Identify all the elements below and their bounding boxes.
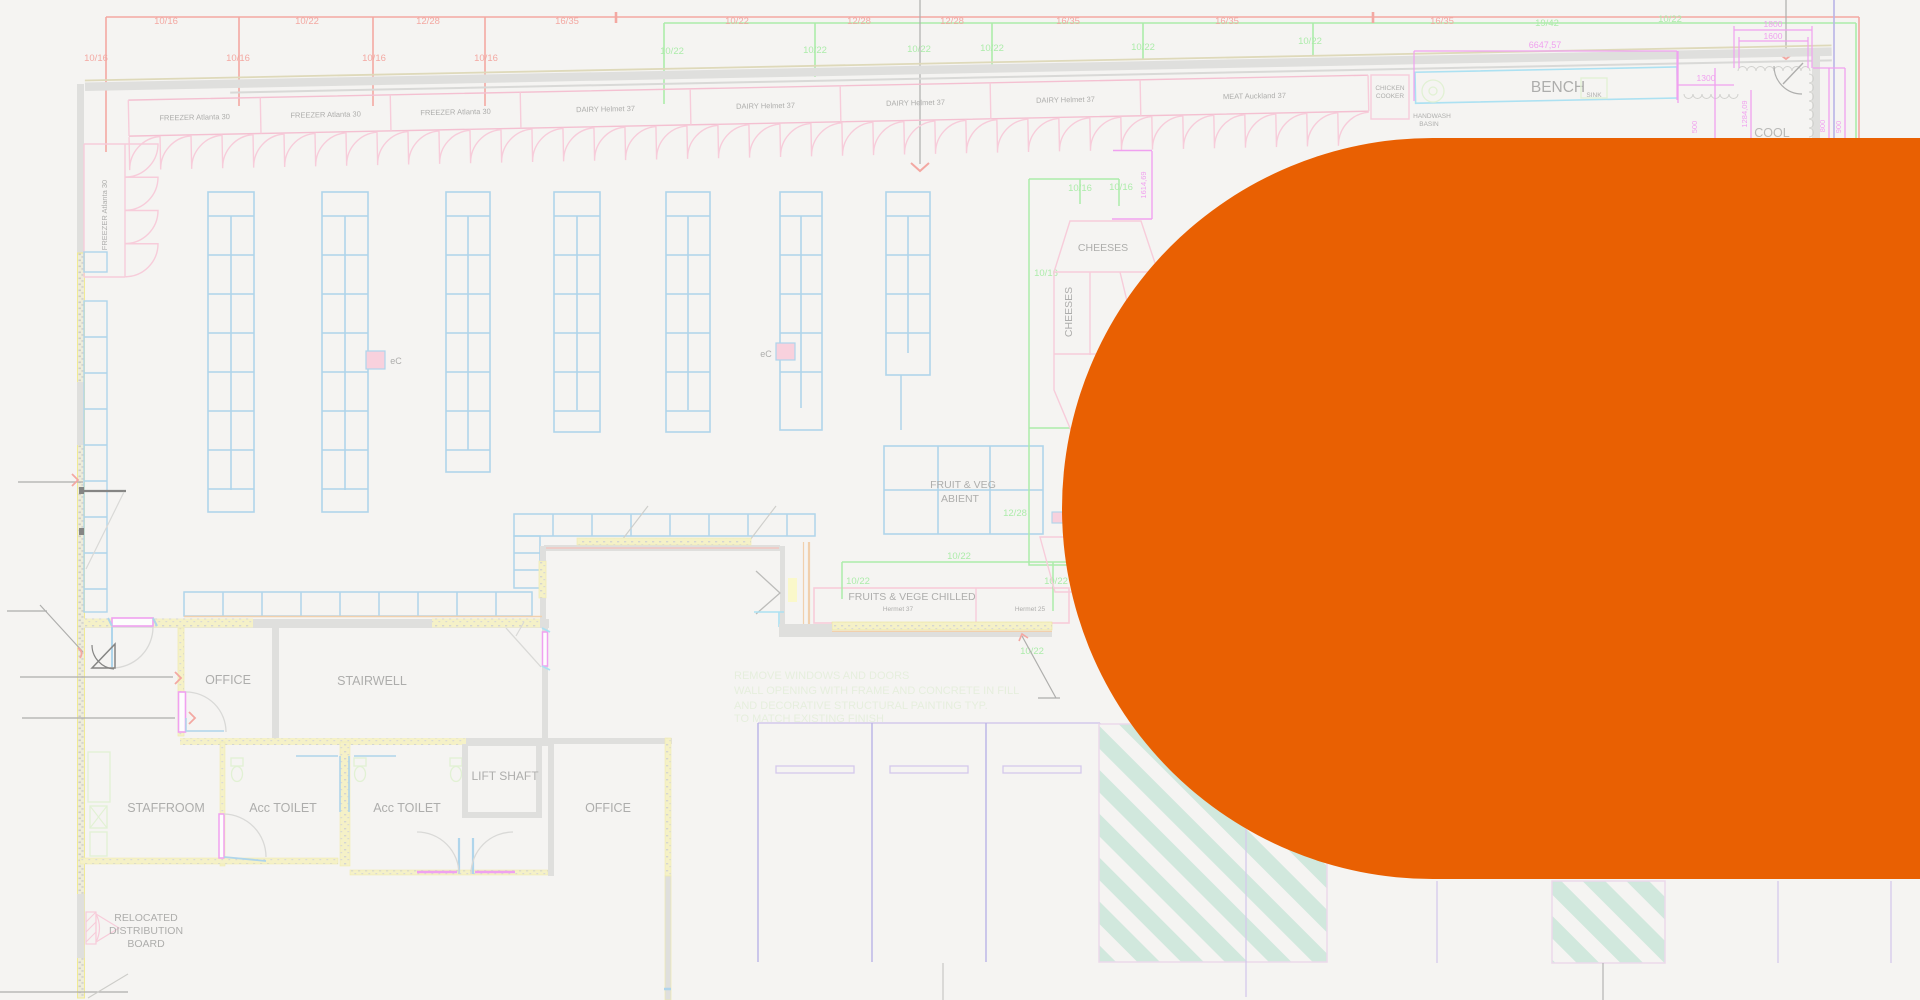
svg-text:BENCH: BENCH (1531, 79, 1585, 96)
svg-text:DAIRY Helmet 37: DAIRY Helmet 37 (886, 98, 945, 108)
svg-text:6647,57: 6647,57 (1529, 40, 1562, 50)
svg-text:DAIRY Helmet 37: DAIRY Helmet 37 (736, 101, 795, 111)
svg-text:10/16: 10/16 (226, 53, 250, 64)
svg-text:10/22: 10/22 (907, 44, 931, 55)
svg-text:1800: 1800 (1764, 19, 1783, 29)
svg-text:10/16: 10/16 (1109, 182, 1133, 193)
svg-text:COOKER: COOKER (1376, 93, 1404, 100)
svg-text:10/22: 10/22 (295, 16, 319, 27)
svg-text:12/28: 12/28 (940, 16, 964, 27)
svg-text:16/35: 16/35 (1430, 16, 1454, 27)
svg-text:900: 900 (1834, 121, 1843, 134)
svg-text:12/28: 12/28 (1003, 508, 1027, 519)
svg-text:10/16: 10/16 (362, 53, 386, 64)
svg-text:16/35: 16/35 (1215, 16, 1239, 27)
svg-text:10/22: 10/22 (947, 551, 971, 562)
svg-text:10/22: 10/22 (1298, 36, 1322, 47)
svg-text:eC: eC (390, 356, 402, 366)
svg-text:16/35: 16/35 (1056, 16, 1080, 27)
svg-text:10/22: 10/22 (725, 16, 749, 27)
svg-text:12/28: 12/28 (416, 16, 440, 27)
svg-text:10/16: 10/16 (154, 16, 178, 27)
svg-text:10/22: 10/22 (660, 46, 684, 57)
svg-text:BASIN: BASIN (1419, 121, 1439, 128)
svg-text:DAIRY Helmet 37: DAIRY Helmet 37 (1036, 95, 1095, 105)
svg-text:1284,09: 1284,09 (1740, 100, 1749, 127)
svg-text:800: 800 (1818, 120, 1827, 133)
svg-text:Acc TOILET: Acc TOILET (373, 801, 441, 815)
svg-text:10/22: 10/22 (846, 576, 870, 587)
svg-text:12/28: 12/28 (847, 16, 871, 27)
svg-text:10/16: 10/16 (84, 53, 108, 64)
svg-text:COOL: COOL (1754, 126, 1789, 140)
svg-text:10/22: 10/22 (980, 43, 1004, 54)
svg-text:BOARD: BOARD (127, 938, 165, 950)
svg-text:WALL OPENING WITH FRAME A: WALL OPENING WITH FRAME AND CONCRETE IN … (734, 685, 1019, 697)
svg-text:DAIRY Helmet 37: DAIRY Helmet 37 (576, 104, 635, 114)
svg-text:eC: eC (760, 349, 772, 359)
svg-text:REMOVE WINDOWS AND DOORS: REMOVE WINDOWS AND DOORS (734, 670, 909, 682)
svg-text:FREEZER Atlanta 30: FREEZER Atlanta 30 (100, 180, 109, 250)
svg-text:FREEZER Atlanta 30: FREEZER Atlanta 30 (159, 112, 230, 122)
svg-text:CHEESES: CHEESES (1078, 242, 1128, 254)
svg-text:Hermet 37: Hermet 37 (883, 606, 914, 613)
svg-text:CHICKEN: CHICKEN (1375, 85, 1405, 92)
svg-text:1600: 1600 (1764, 31, 1783, 41)
svg-text:500: 500 (1690, 121, 1699, 134)
svg-text:Hermet 25: Hermet 25 (1015, 606, 1046, 613)
svg-text:DISTRIBUTION: DISTRIBUTION (109, 925, 183, 937)
svg-text:10/22: 10/22 (1658, 14, 1682, 25)
svg-text:SINK: SINK (1586, 92, 1602, 99)
svg-text:RELOCATED: RELOCATED (114, 912, 178, 924)
svg-text:19/42: 19/42 (1535, 18, 1559, 29)
svg-text:STAIRWELL: STAIRWELL (337, 674, 407, 688)
svg-text:CHEESES: CHEESES (1063, 287, 1075, 337)
svg-text:FRUITS & VEGE CHILLED: FRUITS & VEGE CHILLED (848, 591, 976, 603)
svg-text:10/16: 10/16 (474, 53, 498, 64)
svg-text:1300: 1300 (1697, 73, 1716, 83)
svg-text:HANDWASH: HANDWASH (1413, 113, 1451, 120)
svg-text:STAFFROOM: STAFFROOM (127, 801, 205, 815)
svg-text:OFFICE: OFFICE (205, 673, 251, 687)
svg-text:10/22: 10/22 (803, 45, 827, 56)
svg-text:FREEZER Atlanta 30: FREEZER Atlanta 30 (290, 109, 361, 119)
svg-text:10/22: 10/22 (1044, 576, 1068, 587)
svg-text:LIFT SHAFT: LIFT SHAFT (471, 769, 539, 783)
svg-text:OFFICE: OFFICE (585, 801, 631, 815)
svg-text:1614,69: 1614,69 (1139, 171, 1148, 198)
svg-text:Acc TOILET: Acc TOILET (249, 801, 317, 815)
svg-text:FRUIT & VEG: FRUIT & VEG (930, 479, 996, 491)
svg-text:ABIENT: ABIENT (941, 493, 980, 505)
svg-text:FREEZER Atlanta 30: FREEZER Atlanta 30 (420, 107, 491, 117)
svg-text:10/16: 10/16 (1068, 183, 1092, 194)
svg-text:16/35: 16/35 (555, 16, 579, 27)
svg-text:MEAT Auckland 37: MEAT Auckland 37 (1223, 91, 1286, 101)
svg-text:10/22: 10/22 (1131, 42, 1155, 53)
svg-text:AND DECORATIVE STRUCTURAL P: AND DECORATIVE STRUCTURAL PAINTING TYP. (734, 700, 988, 712)
